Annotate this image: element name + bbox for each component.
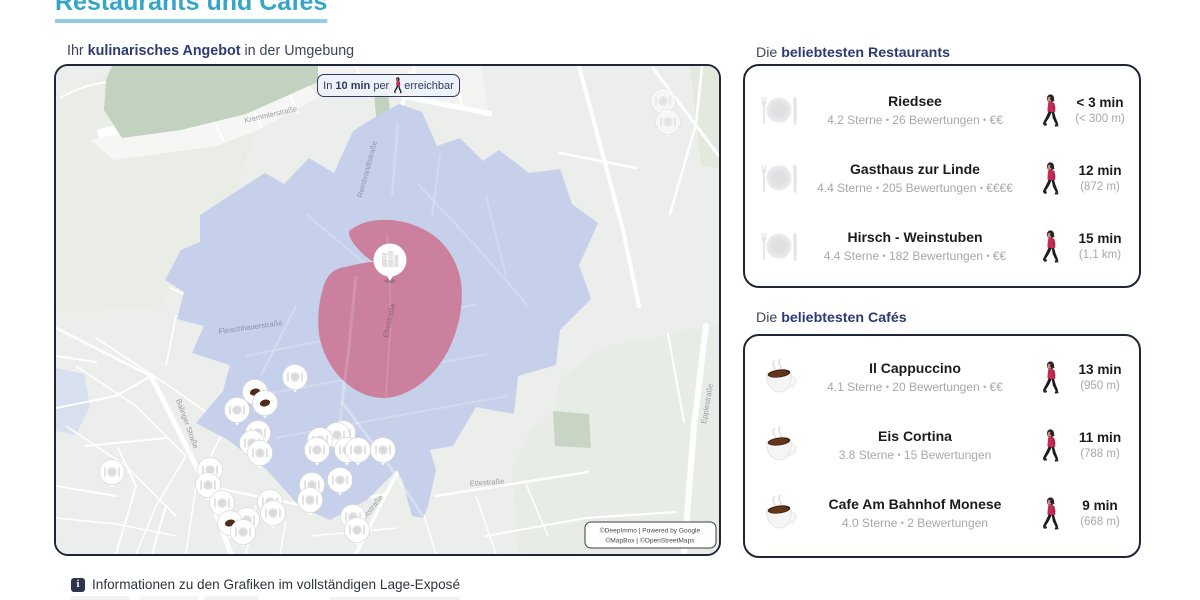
svg-text:©MapBox | ©OpenStreetMaps: ©MapBox | ©OpenStreetMaps: [605, 537, 695, 545]
svg-text:©DeepImmo | Powered by Google: ©DeepImmo | Powered by Google: [600, 527, 701, 535]
